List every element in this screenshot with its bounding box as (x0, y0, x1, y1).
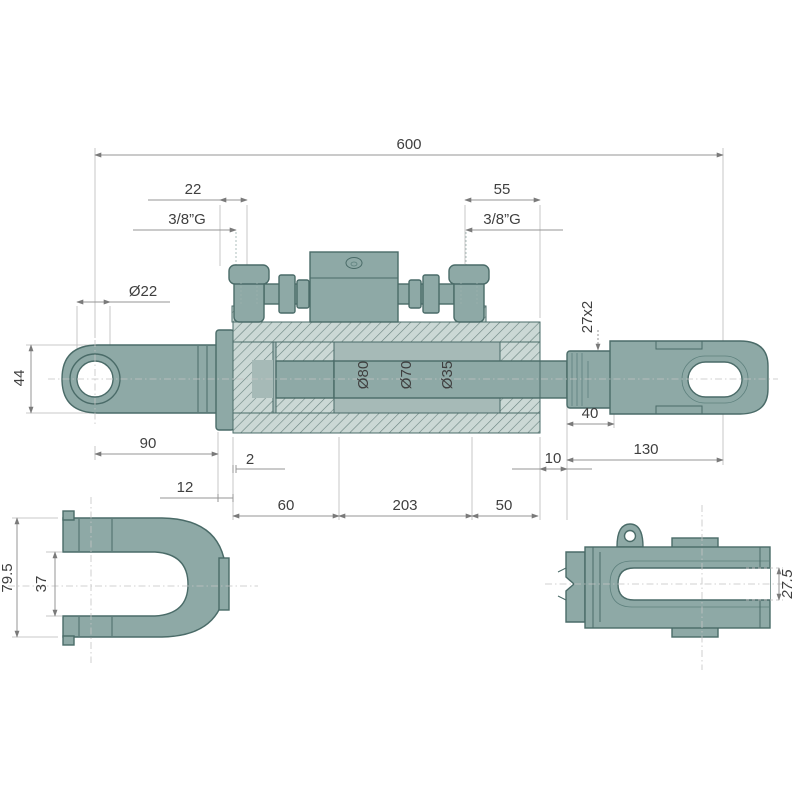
dim-tail-length: 50 (496, 497, 513, 514)
drawing-svg: 600 22 3/8”G 55 3/8”G Ø22 44 27x2 90 2 1… (0, 0, 800, 800)
valve-assembly (229, 252, 489, 322)
pipe-nut-left-2 (297, 280, 309, 308)
dim-port-right-thread: 3/8”G (483, 211, 521, 228)
dim-bore-dia: Ø80 (355, 361, 372, 389)
pipe-nut-left-1 (279, 275, 295, 313)
dim-port-right-offset: 55 (494, 181, 511, 198)
rod-gland-bottom (500, 398, 540, 413)
main-section-view (62, 322, 768, 433)
fork-lug-hole (625, 531, 636, 542)
clevis-tip-bottom (63, 636, 74, 645)
piston-hub (276, 361, 334, 398)
tube-top-wall (233, 322, 540, 342)
piston-bottom (276, 398, 334, 413)
dim-shoulder-length: 10 (545, 450, 562, 467)
dim-clevis-height: 79.5 (0, 563, 16, 592)
dim-gland-gap: 2 (246, 451, 254, 468)
dim-thread-length: 40 (582, 405, 599, 422)
left-clevis-view (63, 511, 229, 645)
tube-bottom-wall (233, 413, 540, 433)
pipe-nut-right-2 (409, 280, 421, 308)
left-elbow-cap (229, 265, 269, 284)
fork-slot-hole (688, 362, 742, 397)
dim-eye-to-flange: 90 (140, 435, 157, 452)
dim-tube-length: 203 (392, 497, 417, 514)
clevis-boss (219, 558, 229, 610)
dim-fork-slot-width: 27.5 (779, 569, 796, 600)
rod-gland-top (500, 342, 540, 361)
dim-inner-dia: Ø70 (398, 361, 415, 389)
dim-port-left-offset: 22 (185, 181, 202, 198)
fork-thread-stub (566, 552, 585, 622)
piston-top (276, 342, 334, 361)
dim-overall-length: 600 (396, 136, 421, 153)
technical-drawing-canvas: 600 22 3/8”G 55 3/8”G Ø22 44 27x2 90 2 1… (0, 0, 800, 800)
clevis-body (63, 518, 226, 637)
pipe-nut-right-1 (423, 275, 439, 313)
valve-block (310, 252, 398, 322)
right-fork-view (558, 524, 770, 637)
dim-flange-width: 12 (177, 479, 194, 496)
dim-head-length: 60 (278, 497, 295, 514)
thread-collar (567, 351, 614, 408)
right-elbow-cap (449, 265, 489, 284)
dim-port-left-thread: 3/8”G (168, 211, 206, 228)
dim-clevis-gap: 37 (33, 576, 50, 593)
dim-fork-length: 130 (633, 441, 658, 458)
clevis-tip-top (63, 511, 74, 520)
dim-rod-thread: 27x2 (579, 301, 596, 334)
gland-flange (216, 330, 234, 430)
dim-eye-hole-dia: Ø22 (129, 283, 157, 300)
dim-rod-dia: Ø35 (439, 361, 456, 389)
dim-eye-height: 44 (11, 370, 28, 387)
